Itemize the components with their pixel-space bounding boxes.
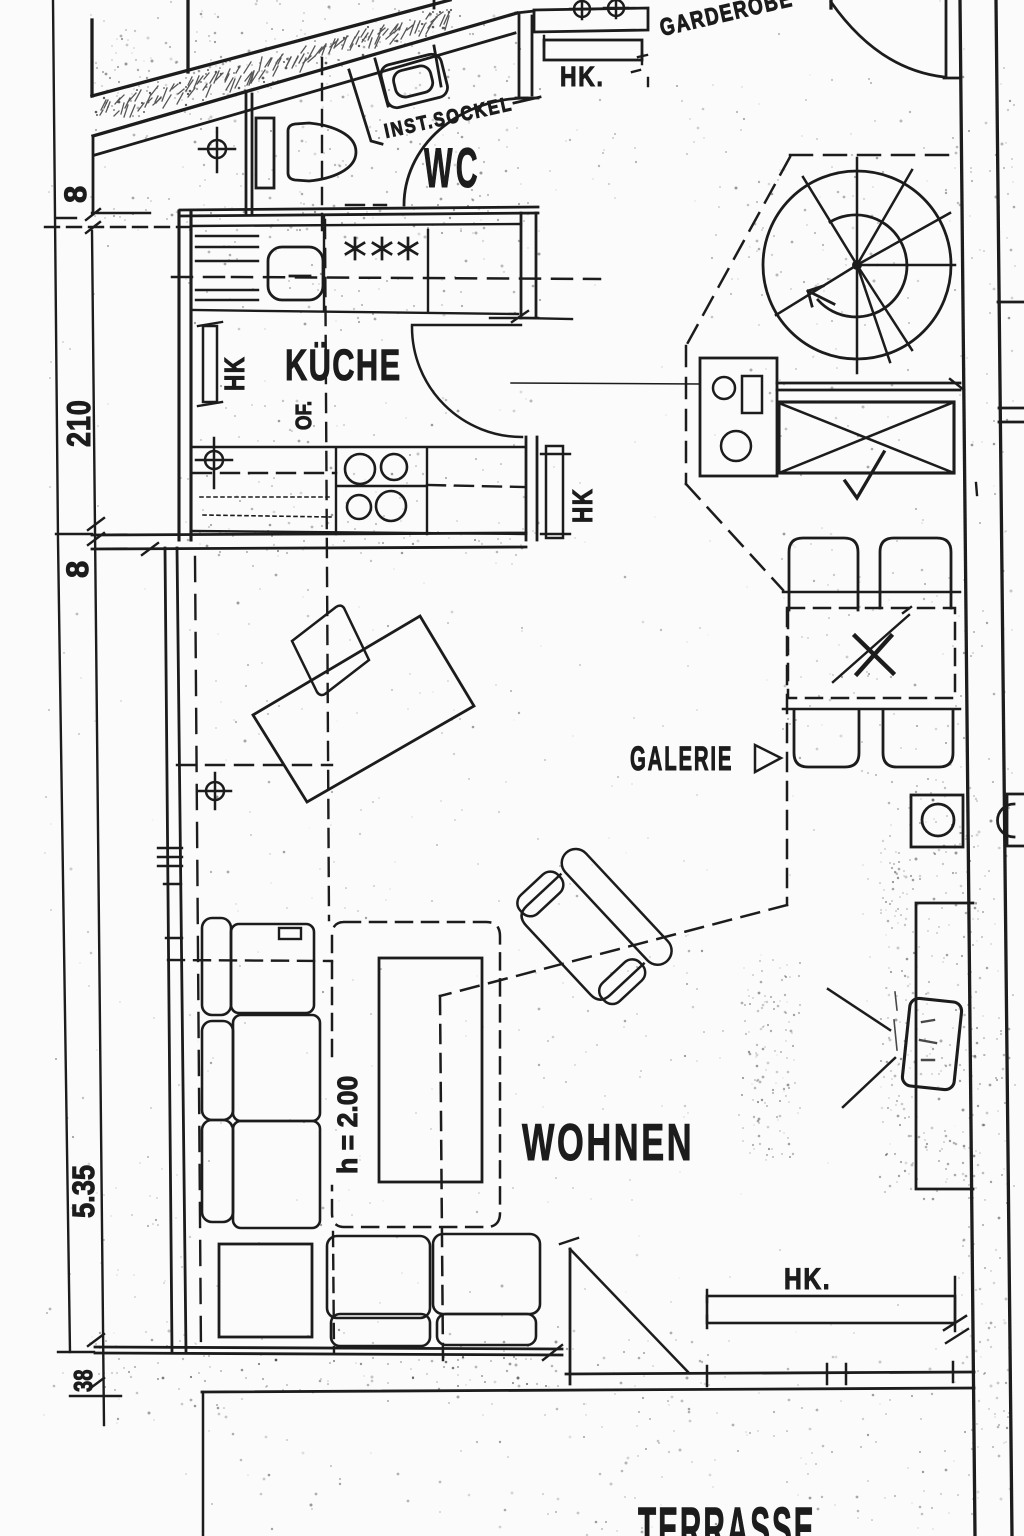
- svg-text:8: 8: [60, 561, 95, 578]
- svg-text:h = 2.00: h = 2.00: [332, 1076, 363, 1174]
- svg-text:8: 8: [58, 186, 93, 203]
- svg-text:GALERIE: GALERIE: [630, 740, 733, 778]
- svg-text:OF.: OF.: [291, 401, 316, 430]
- svg-text:HK: HK: [219, 355, 250, 391]
- svg-text:WC: WC: [424, 136, 481, 199]
- svg-text:210: 210: [60, 399, 97, 447]
- svg-text:WOHNEN: WOHNEN: [522, 1114, 694, 1172]
- svg-text:HK.: HK.: [784, 1263, 831, 1296]
- svg-text:HK: HK: [567, 487, 598, 523]
- svg-text:TERRASSE: TERRASSE: [638, 1495, 816, 1536]
- svg-text:HK.: HK.: [560, 61, 604, 92]
- svg-text:38: 38: [68, 1369, 98, 1392]
- svg-text:KÜCHE: KÜCHE: [285, 341, 402, 390]
- svg-text:5.35: 5.35: [66, 1165, 101, 1218]
